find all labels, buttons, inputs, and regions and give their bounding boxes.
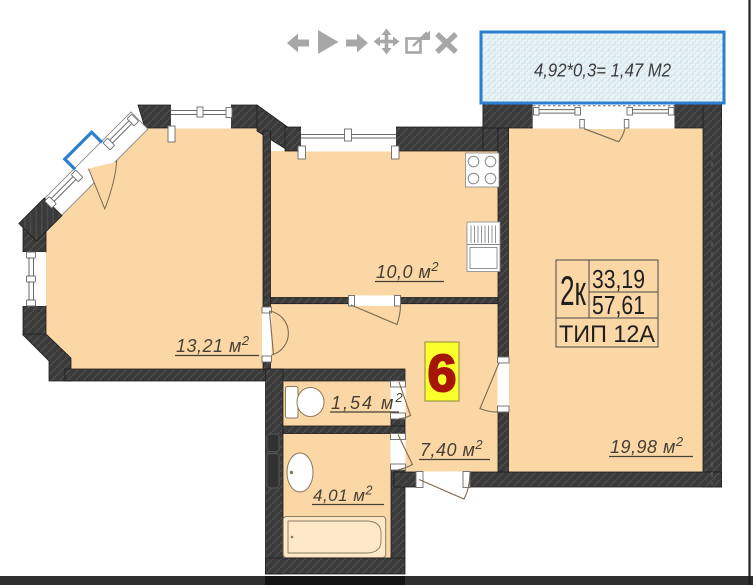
svg-text:10,0 м2: 10,0 м2: [376, 259, 439, 282]
svg-text:ТИП 12А: ТИП 12А: [559, 321, 655, 348]
svg-text:19,98 м2: 19,98 м2: [610, 434, 684, 457]
svg-text:1,54 м2: 1,54 м2: [331, 390, 405, 413]
svg-text:13,21 м2: 13,21 м2: [176, 333, 250, 356]
svg-text:57,61: 57,61: [592, 290, 645, 320]
svg-text:7,40 м2: 7,40 м2: [420, 437, 483, 460]
svg-text:2к: 2к: [560, 267, 586, 314]
svg-text:4,01 м2: 4,01 м2: [313, 484, 373, 506]
svg-text:4,92*0,3= 1,47 М2: 4,92*0,3= 1,47 М2: [534, 60, 672, 81]
svg-text:6: 6: [428, 345, 457, 403]
